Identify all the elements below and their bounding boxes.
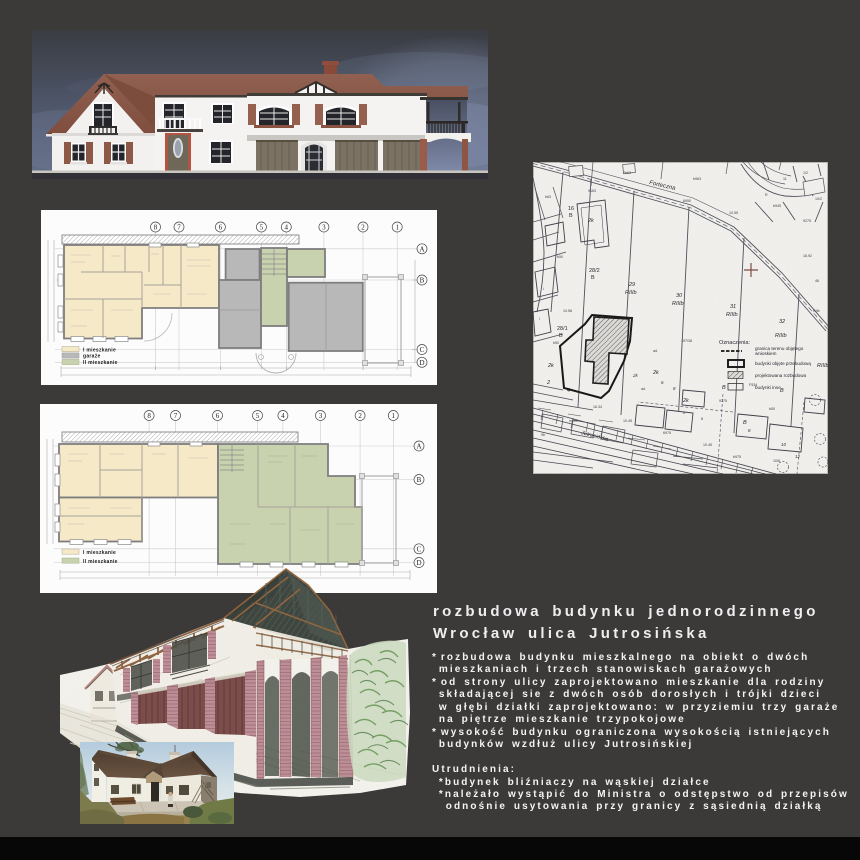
svg-text:B: B (420, 277, 425, 285)
svg-text:A: A (419, 245, 424, 253)
svg-text:5: 5 (260, 224, 264, 232)
svg-text:garaże: garaże (83, 354, 101, 360)
svg-text:I mieszkanie: I mieszkanie (83, 550, 116, 556)
svg-text:1: 1 (395, 224, 399, 232)
svg-text:D: D (419, 359, 424, 367)
svg-text:3: 3 (322, 224, 326, 232)
svg-text:8: 8 (147, 412, 151, 420)
svg-text:3: 3 (319, 412, 323, 420)
svg-text:7: 7 (174, 412, 178, 420)
svg-text:8: 8 (154, 224, 158, 232)
svg-text:D: D (416, 559, 421, 567)
svg-text:2: 2 (358, 412, 362, 420)
svg-text:4: 4 (281, 412, 285, 420)
svg-text:I mieszkanie: I mieszkanie (83, 347, 116, 353)
svg-text:6: 6 (216, 412, 220, 420)
svg-text:C: C (420, 346, 425, 354)
svg-text:B: B (417, 476, 422, 484)
svg-text:7: 7 (177, 224, 181, 232)
svg-text:2: 2 (361, 224, 365, 232)
svg-text:5: 5 (256, 412, 260, 420)
svg-text:C: C (417, 545, 422, 553)
svg-text:A: A (416, 443, 421, 451)
svg-text:4: 4 (285, 224, 289, 232)
svg-text:6: 6 (219, 224, 223, 232)
svg-text:1: 1 (392, 412, 396, 420)
svg-text:II mieszkanie: II mieszkanie (83, 360, 118, 366)
